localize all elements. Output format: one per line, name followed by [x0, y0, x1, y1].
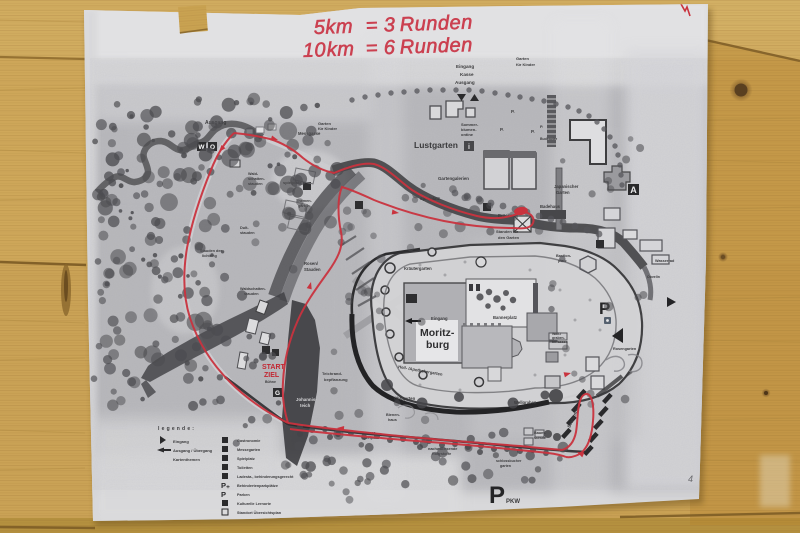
svg-text:Garten: Garten — [556, 190, 570, 195]
svg-text:Gartengalerien: Gartengalerien — [438, 176, 469, 181]
svg-text:P: P — [489, 482, 505, 509]
svg-text:terrassen: terrassen — [552, 340, 568, 344]
svg-text:bepflanzung: bepflanzung — [324, 377, 348, 382]
svg-text:i: i — [468, 144, 470, 151]
svg-text:Dult-: Dult- — [240, 226, 249, 230]
svg-text:G: G — [275, 390, 280, 397]
svg-text:Kulturelle Lernorte: Kulturelle Lernorte — [237, 502, 271, 506]
svg-text:lichtung: lichtung — [202, 254, 217, 258]
svg-text:Wasserrad: Wasserrad — [655, 259, 675, 263]
svg-text:ontine: ontine — [461, 132, 474, 137]
svg-text:Rosengarten: Rosengarten — [613, 347, 637, 351]
svg-text:Behindertenparkplätze: Behindertenparkplätze — [237, 484, 278, 488]
svg-text:Rosen/: Rosen/ — [304, 261, 319, 266]
svg-text:PKW: PKW — [506, 499, 520, 505]
svg-text:Ausgang / Übergang: Ausgang / Übergang — [173, 448, 213, 453]
svg-text:Baum-: Baum- — [534, 431, 547, 435]
svg-text:schule: schule — [534, 436, 546, 440]
svg-text:schlossbucher: schlossbucher — [496, 459, 522, 463]
svg-text:Teichrand-: Teichrand- — [322, 371, 343, 376]
svg-text:Bienen-: Bienen- — [386, 413, 401, 417]
svg-text:Standen für: Standen für — [496, 229, 519, 234]
svg-text:Ladesta., behinderungsgerecht: Ladesta., behinderungsgerecht — [237, 475, 294, 479]
svg-text:Bühne: Bühne — [265, 380, 276, 384]
svg-text:teich: teich — [300, 403, 311, 408]
svg-text:Badehaus: Badehaus — [540, 204, 561, 209]
svg-text:Kartenthemen: Kartenthemen — [173, 457, 200, 462]
svg-text:Wellgraben: Wellgraben — [514, 400, 537, 405]
svg-text:P: P — [221, 490, 226, 499]
svg-text:den Garten: den Garten — [498, 235, 520, 240]
svg-text:P.: P. — [511, 109, 515, 114]
svg-text:Kasse: Kasse — [460, 72, 474, 77]
svg-text:für Kinder: für Kinder — [318, 126, 338, 131]
svg-text:Johannis-: Johannis- — [296, 397, 317, 402]
svg-text:für Kinder: für Kinder — [516, 62, 536, 67]
svg-text:Spielplatz: Spielplatz — [237, 457, 255, 461]
svg-text:Standort Übersichtsplan: Standort Übersichtsplan — [237, 510, 282, 515]
svg-text:ZIEL: ZIEL — [264, 372, 280, 379]
svg-text:Waldschatten-: Waldschatten- — [240, 287, 267, 291]
svg-text:burg: burg — [426, 339, 449, 351]
svg-text:Lustgarten: Lustgarten — [414, 140, 458, 150]
svg-text:Budenvier: Budenvier — [540, 137, 558, 141]
svg-text:P₊: P₊ — [221, 481, 230, 490]
svg-text:4: 4 — [688, 474, 693, 484]
svg-text:Parken: Parken — [237, 493, 250, 497]
svg-text:P.: P. — [531, 129, 535, 134]
svg-text:haus: haus — [388, 418, 397, 422]
svg-text:garten: garten — [500, 464, 511, 468]
svg-text:Obvelin: Obvelin — [647, 275, 660, 279]
svg-text:legende:: legende: — [158, 426, 196, 432]
svg-text:Stauden: Stauden — [304, 267, 321, 272]
svg-text:P.: P. — [500, 127, 504, 132]
svg-text:A: A — [630, 185, 637, 195]
svg-text:P.: P. — [540, 124, 543, 129]
svg-text:Eingang: Eingang — [456, 64, 474, 69]
svg-text:Japanischer: Japanischer — [554, 184, 579, 189]
svg-text:Bannerplatz: Bannerplatz — [493, 315, 517, 320]
svg-text:Gastronomie: Gastronomie — [237, 439, 260, 443]
svg-text:START: START — [262, 364, 286, 371]
svg-text:Moritz-: Moritz- — [420, 327, 455, 339]
svg-text:stauden: stauden — [240, 231, 255, 235]
svg-text:Eingang: Eingang — [173, 439, 189, 444]
svg-text:Messegarten: Messegarten — [237, 448, 261, 452]
svg-text:Wald-: Wald- — [248, 172, 259, 176]
svg-text:Eingang: Eingang — [431, 316, 448, 321]
svg-text:Toiletten: Toiletten — [237, 466, 253, 470]
svg-text:Kräutergarten: Kräutergarten — [404, 266, 432, 271]
svg-text:Ausgang: Ausgang — [455, 80, 475, 85]
svg-text:Garten: Garten — [516, 56, 529, 61]
